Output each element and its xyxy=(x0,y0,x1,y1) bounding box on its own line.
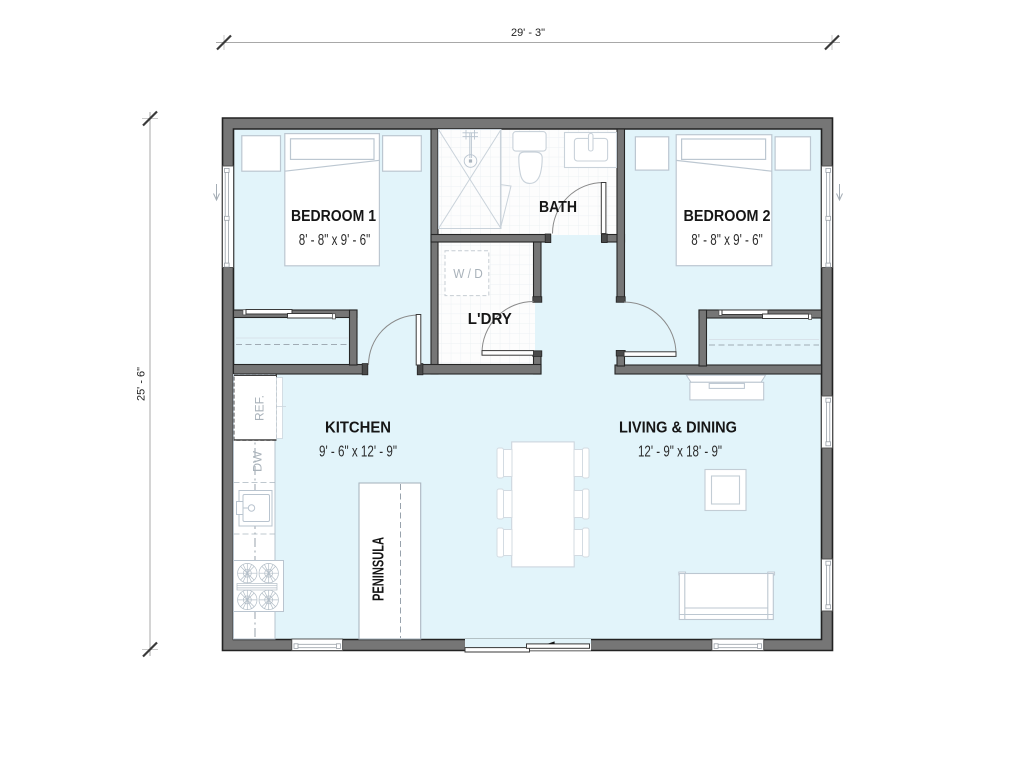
svg-text:8' - 8" x 9' - 6": 8' - 8" x 9' - 6" xyxy=(299,232,371,249)
svg-text:PENINSULA: PENINSULA xyxy=(371,537,388,601)
svg-text:12' - 9" x 18' - 9": 12' - 9" x 18' - 9" xyxy=(638,444,722,461)
svg-text:8' - 8" x 9' - 6": 8' - 8" x 9' - 6" xyxy=(691,232,763,249)
svg-text:29' - 3": 29' - 3" xyxy=(511,27,545,39)
svg-text:L'DRY: L'DRY xyxy=(468,311,512,328)
svg-text:25' - 6": 25' - 6" xyxy=(136,367,148,401)
svg-text:BATH: BATH xyxy=(539,199,577,216)
svg-text:DW: DW xyxy=(251,450,265,472)
svg-text:BEDROOM 1: BEDROOM 1 xyxy=(291,208,376,225)
svg-text:9' - 6" x 12' - 9": 9' - 6" x 12' - 9" xyxy=(319,444,397,461)
svg-text:REF.: REF. xyxy=(253,395,267,421)
svg-text:LIVING & DINING: LIVING & DINING xyxy=(619,420,737,437)
svg-text:KITCHEN: KITCHEN xyxy=(325,420,391,437)
svg-text:BEDROOM 2: BEDROOM 2 xyxy=(684,208,771,225)
svg-text:W / D: W / D xyxy=(453,266,483,281)
